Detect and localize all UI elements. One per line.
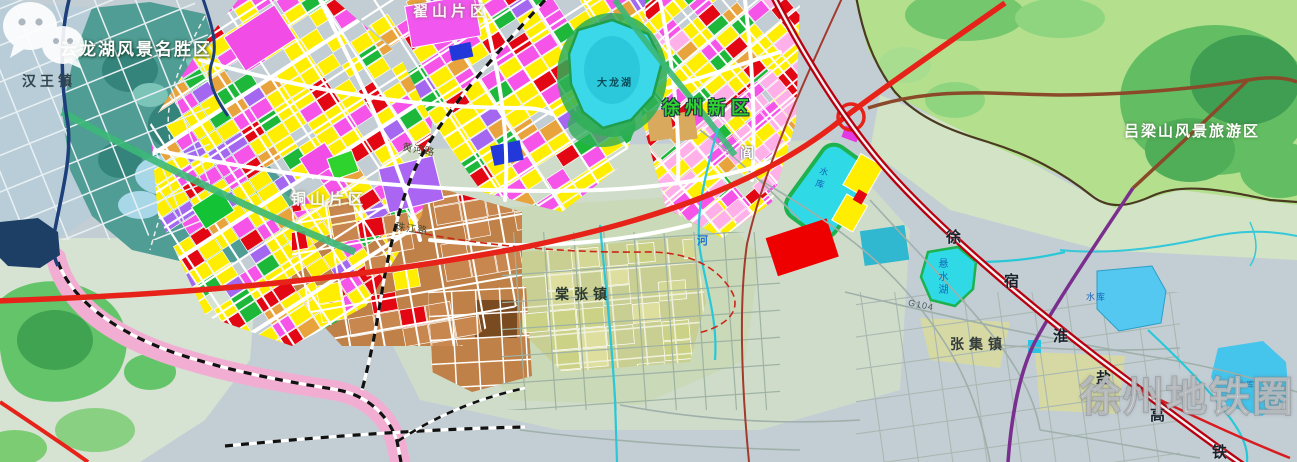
map-canvas	[0, 0, 1297, 462]
label-railway-char-huai: 淮	[1053, 325, 1068, 346]
parcel	[370, 292, 398, 314]
label-railway-char-xu: 徐	[946, 226, 961, 247]
parcel	[578, 327, 607, 348]
label-railway-char-su: 宿	[1004, 270, 1019, 291]
label-railway-char-tie: 铁	[1212, 441, 1227, 462]
parcel	[434, 203, 462, 225]
label-railway-char-yan: 盐	[1096, 367, 1111, 388]
wechat-icon	[0, 0, 92, 70]
parcel	[627, 242, 656, 263]
label-railway-char-gao: 高	[1150, 404, 1165, 425]
planning-map: 云龙湖风景名胜区 汉王镇 吕梁山风景旅游区 翟山片区 铜山片区 徐州新区 大龙湖…	[0, 0, 1297, 462]
